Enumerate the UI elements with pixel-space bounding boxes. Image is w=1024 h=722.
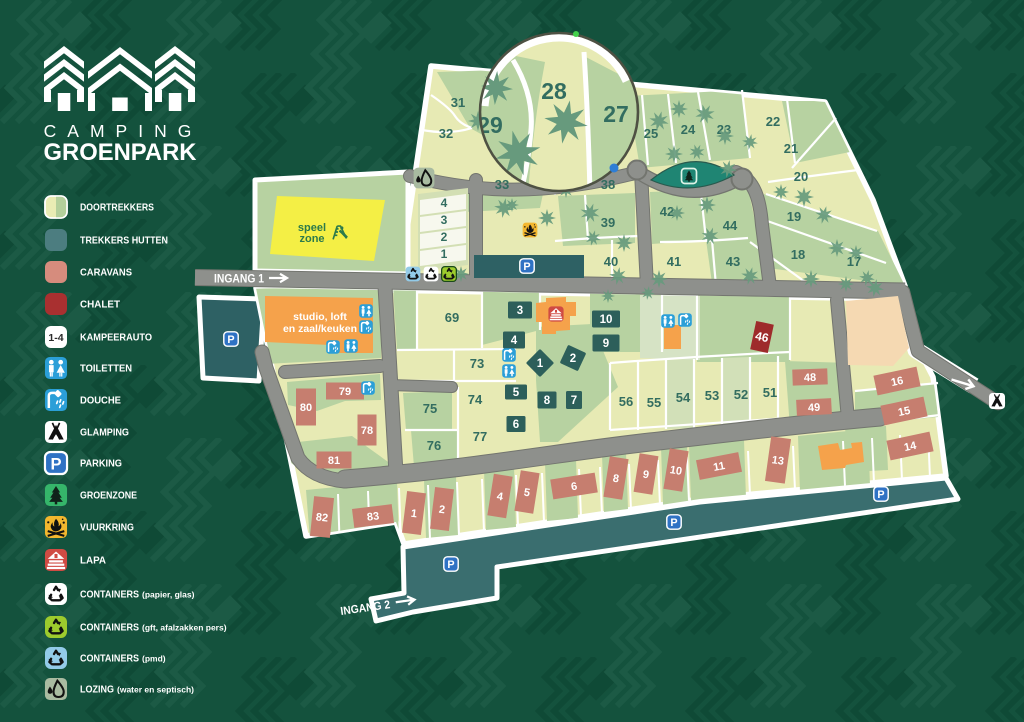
svg-text:32: 32 [439,126,453,141]
svg-text:16: 16 [890,375,904,389]
svg-text:31: 31 [451,95,465,110]
svg-text:2: 2 [441,230,448,244]
svg-text:1: 1 [441,247,448,261]
svg-text:3: 3 [441,213,448,227]
svg-text:39: 39 [601,215,615,230]
svg-text:(gft, afalzakken pers): (gft, afalzakken pers) [142,623,227,633]
svg-text:75: 75 [423,401,437,416]
svg-text:6: 6 [513,419,519,431]
svg-text:DOORTREKKERS: DOORTREKKERS [80,203,154,214]
svg-text:7: 7 [571,395,577,407]
svg-text:TOILETTEN: TOILETTEN [80,364,132,375]
svg-text:69: 69 [445,310,459,325]
svg-text:10: 10 [669,464,683,478]
svg-text:11: 11 [712,460,726,474]
svg-text:38: 38 [601,177,615,192]
svg-text:INGANG 1: INGANG 1 [214,274,265,286]
svg-text:22: 22 [766,114,780,129]
svg-text:9: 9 [603,338,609,350]
svg-text:33: 33 [495,177,509,192]
svg-text:15: 15 [897,405,911,419]
svg-text:49: 49 [808,402,821,415]
svg-text:CONTAINERS: CONTAINERS [80,590,139,601]
svg-text:(papier, glas): (papier, glas) [142,590,195,600]
svg-text:(water en septisch): (water en septisch) [117,685,194,695]
svg-text:40: 40 [604,254,618,269]
svg-text:81: 81 [328,455,340,467]
svg-text:79: 79 [339,386,351,398]
svg-text:CHALET: CHALET [80,300,120,311]
svg-text:CONTAINERS: CONTAINERS [80,623,139,634]
svg-text:DOUCHE: DOUCHE [80,396,121,407]
svg-text:LAPA: LAPA [80,556,106,567]
svg-text:83: 83 [366,510,380,523]
svg-text:PARKING: PARKING [80,459,122,470]
svg-text:19: 19 [787,209,801,224]
svg-text:(pmd): (pmd) [142,654,166,664]
svg-text:8: 8 [544,395,551,407]
svg-text:5: 5 [513,387,520,399]
svg-text:4: 4 [511,335,518,347]
svg-text:24: 24 [681,122,696,137]
svg-text:2: 2 [570,353,576,365]
svg-text:CAMPING: CAMPING [44,121,203,141]
svg-text:56: 56 [619,394,633,409]
svg-text:44: 44 [723,218,738,233]
svg-text:1-4: 1-4 [48,332,63,344]
svg-text:GROENZONE: GROENZONE [80,491,137,502]
svg-text:GROENPARK: GROENPARK [44,139,197,166]
svg-text:4: 4 [441,196,448,210]
svg-text:28: 28 [541,78,567,104]
svg-text:GLAMPING: GLAMPING [80,428,129,439]
svg-text:CARAVANS: CARAVANS [80,268,132,279]
svg-text:80: 80 [300,402,312,414]
svg-text:KAMPEERAUTO: KAMPEERAUTO [80,333,152,344]
svg-text:13: 13 [771,454,785,468]
svg-text:74: 74 [468,392,483,407]
svg-text:77: 77 [473,429,487,444]
svg-text:LOZING: LOZING [80,685,114,696]
svg-text:1: 1 [537,358,544,370]
svg-text:3: 3 [517,305,523,317]
svg-text:VUURKRING: VUURKRING [80,523,134,534]
svg-text:43: 43 [726,254,740,269]
svg-text:18: 18 [791,247,805,262]
svg-text:76: 76 [427,438,441,453]
svg-text:20: 20 [794,169,808,184]
svg-text:TREKKERS HUTTEN: TREKKERS HUTTEN [80,236,168,247]
svg-text:studio, loft: studio, loft [293,311,347,323]
svg-text:CONTAINERS: CONTAINERS [80,654,139,665]
svg-text:zone: zone [299,233,324,245]
svg-text:en zaal/keuken: en zaal/keuken [283,323,357,335]
svg-text:51: 51 [763,385,777,400]
svg-text:54: 54 [676,390,691,405]
svg-text:41: 41 [667,254,681,269]
svg-text:25: 25 [644,126,658,141]
svg-text:52: 52 [734,387,748,402]
svg-text:82: 82 [315,511,328,524]
svg-text:55: 55 [647,395,661,410]
svg-text:27: 27 [603,101,629,127]
svg-text:10: 10 [600,314,613,326]
svg-text:53: 53 [705,388,719,403]
svg-text:48: 48 [804,372,817,384]
svg-text:78: 78 [361,425,373,437]
svg-text:42: 42 [660,204,674,219]
svg-text:73: 73 [470,356,484,371]
svg-text:21: 21 [784,141,798,156]
